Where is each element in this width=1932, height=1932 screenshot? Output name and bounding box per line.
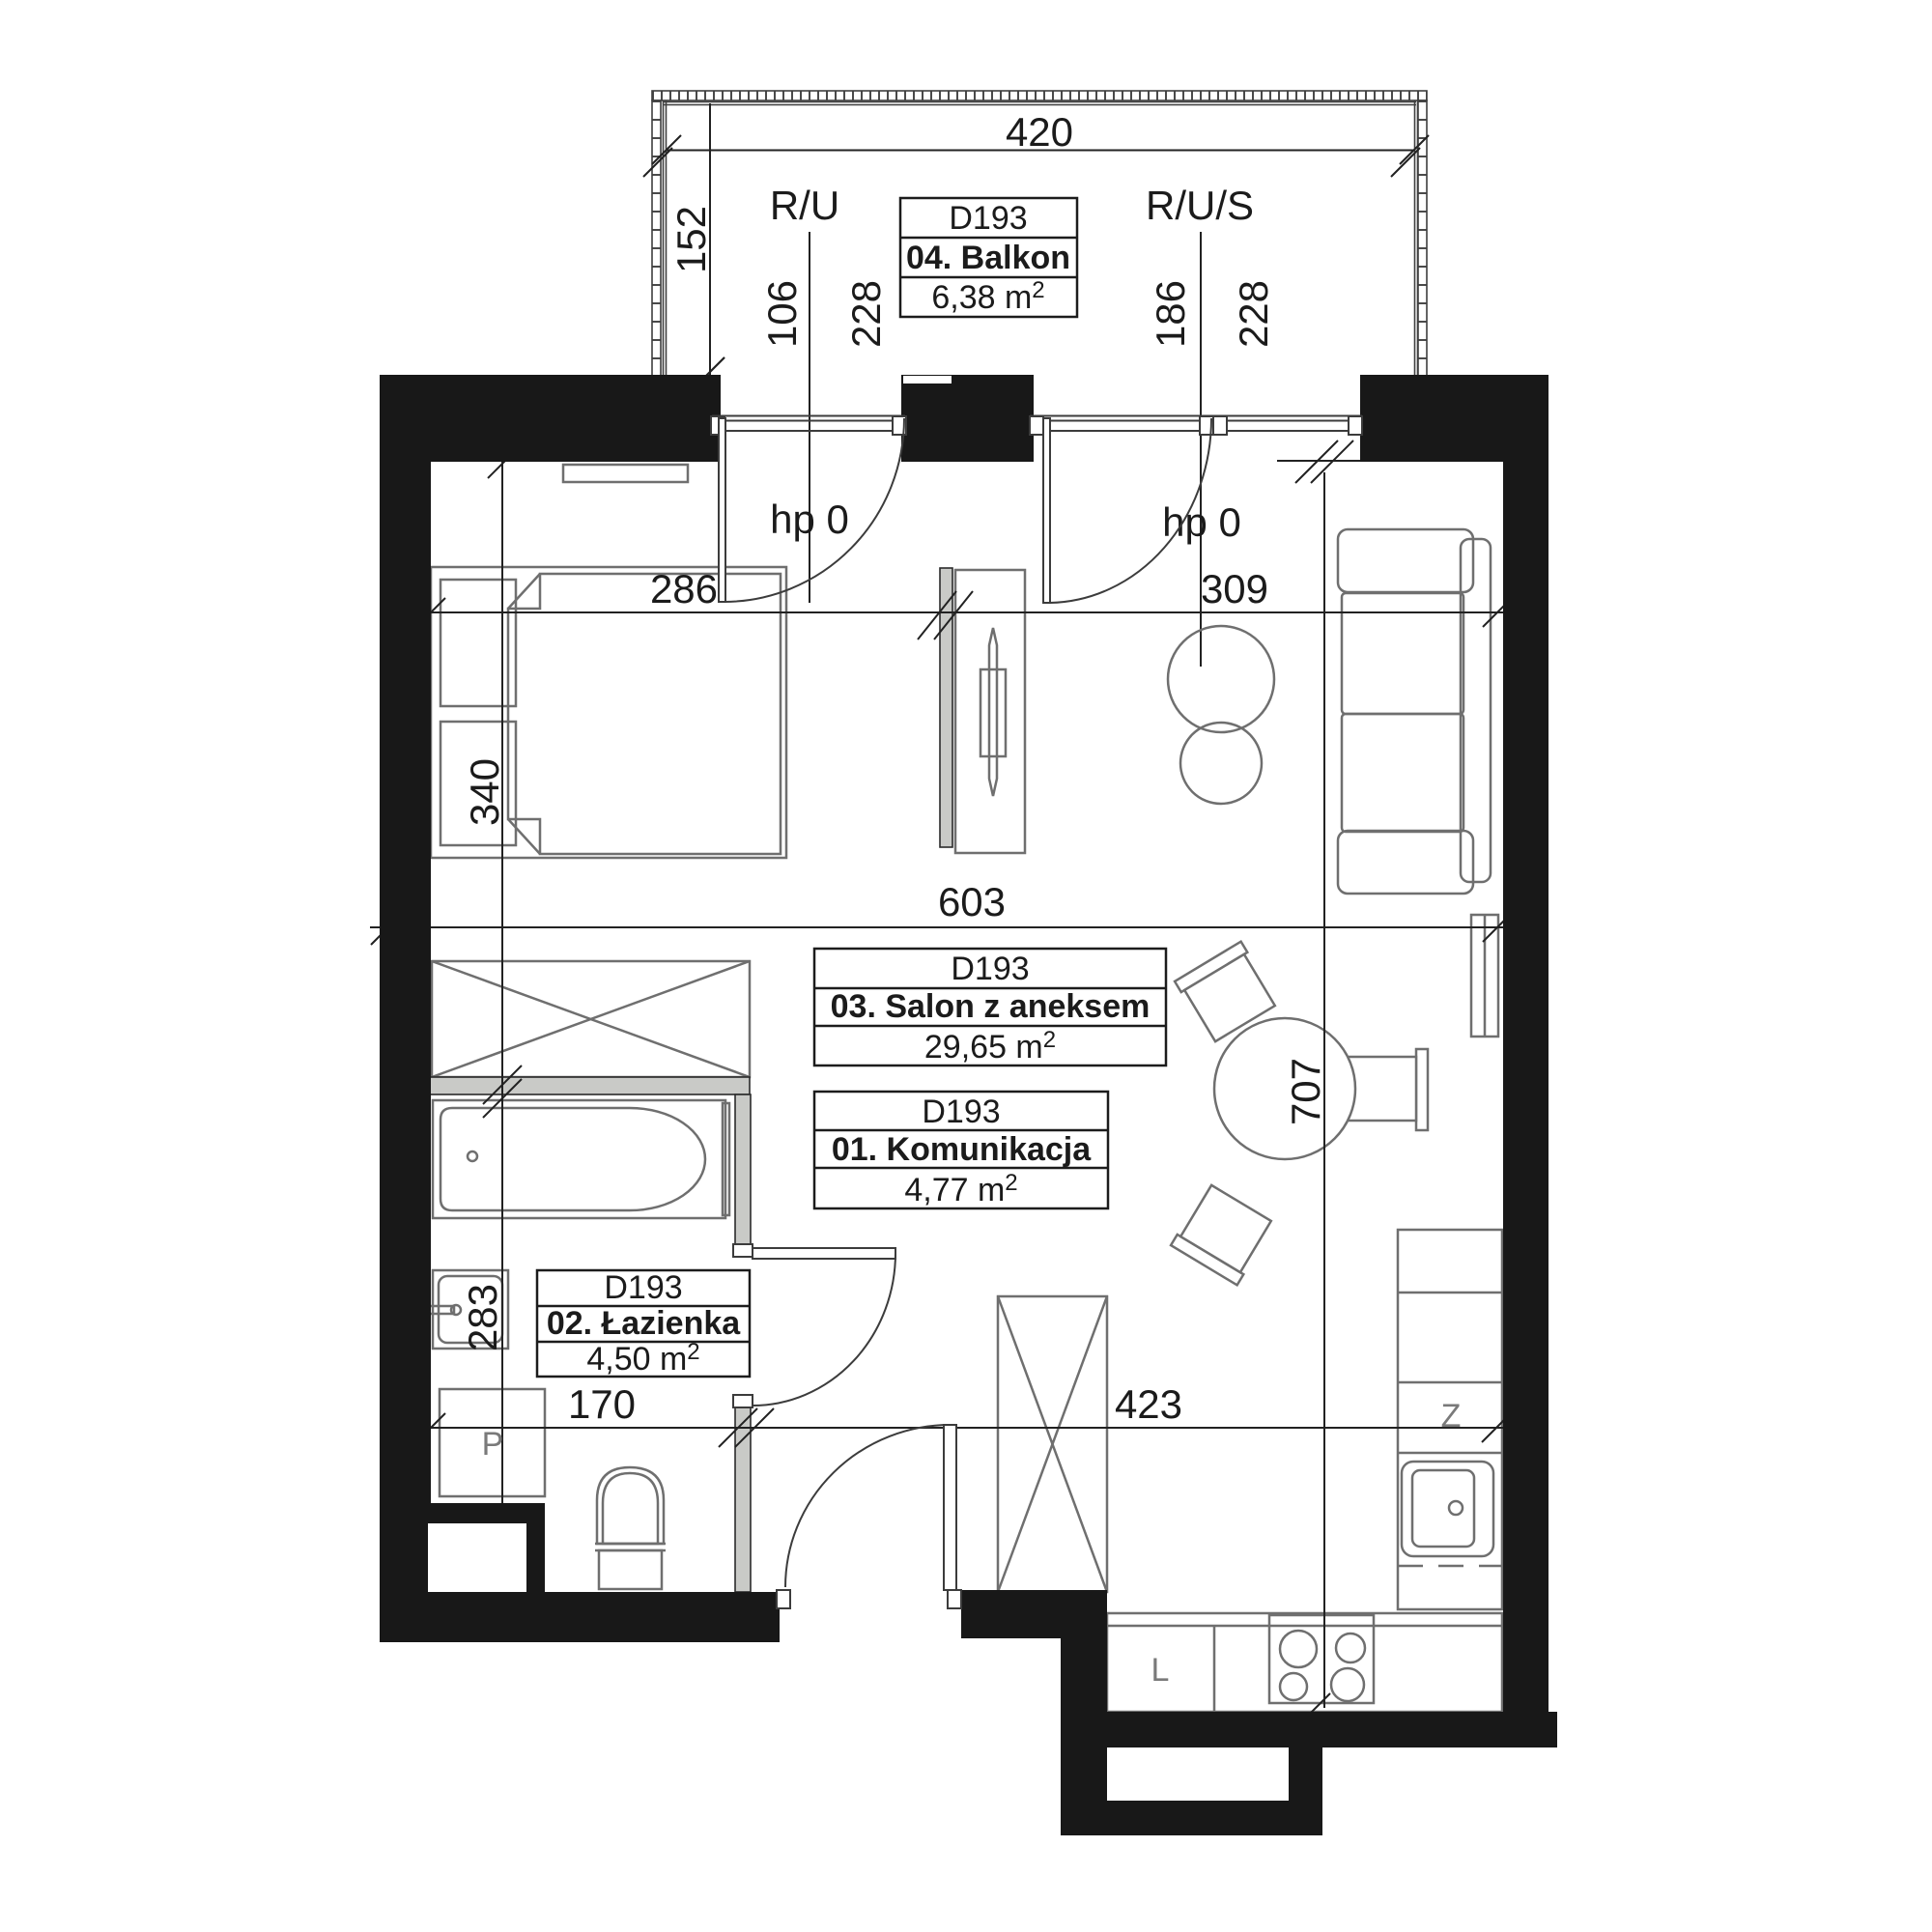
- svg-text:4,50 m2: 4,50 m2: [586, 1339, 699, 1378]
- svg-text:186: 186: [1148, 280, 1193, 348]
- svg-text:286: 286: [650, 566, 718, 611]
- svg-text:L: L: [1151, 1652, 1170, 1689]
- svg-text:03. Salon z aneksem: 03. Salon z aneksem: [831, 988, 1151, 1025]
- svg-text:423: 423: [1115, 1381, 1182, 1427]
- svg-text:309: 309: [1201, 566, 1268, 611]
- svg-text:228: 228: [843, 280, 889, 348]
- svg-text:106: 106: [759, 280, 805, 348]
- svg-text:R/U: R/U: [770, 183, 839, 228]
- svg-text:603: 603: [938, 879, 1006, 924]
- svg-text:hp 0: hp 0: [1162, 499, 1241, 545]
- svg-text:D193: D193: [949, 200, 1027, 237]
- svg-text:152: 152: [668, 206, 714, 273]
- svg-text:340: 340: [462, 758, 507, 826]
- svg-text:D193: D193: [951, 951, 1029, 987]
- svg-text:6,38 m2: 6,38 m2: [931, 277, 1044, 316]
- svg-text:D193: D193: [922, 1094, 1000, 1130]
- svg-text:01. Komunikacja: 01. Komunikacja: [832, 1131, 1092, 1168]
- svg-text:02. Łazienka: 02. Łazienka: [547, 1305, 741, 1342]
- svg-text:228: 228: [1231, 280, 1276, 348]
- svg-text:04. Balkon: 04. Balkon: [906, 240, 1070, 276]
- svg-text:hp 0: hp 0: [770, 497, 849, 542]
- svg-text:P: P: [482, 1426, 504, 1463]
- svg-text:707: 707: [1283, 1058, 1328, 1125]
- svg-text:D193: D193: [604, 1269, 682, 1306]
- svg-text:170: 170: [568, 1381, 636, 1427]
- svg-text:420: 420: [1006, 109, 1073, 155]
- svg-text:4,77 m2: 4,77 m2: [904, 1170, 1017, 1208]
- svg-text:R/U/S: R/U/S: [1146, 183, 1254, 228]
- svg-text:29,65 m2: 29,65 m2: [924, 1027, 1056, 1065]
- svg-text:Z: Z: [1441, 1398, 1462, 1435]
- svg-text:283: 283: [460, 1284, 505, 1351]
